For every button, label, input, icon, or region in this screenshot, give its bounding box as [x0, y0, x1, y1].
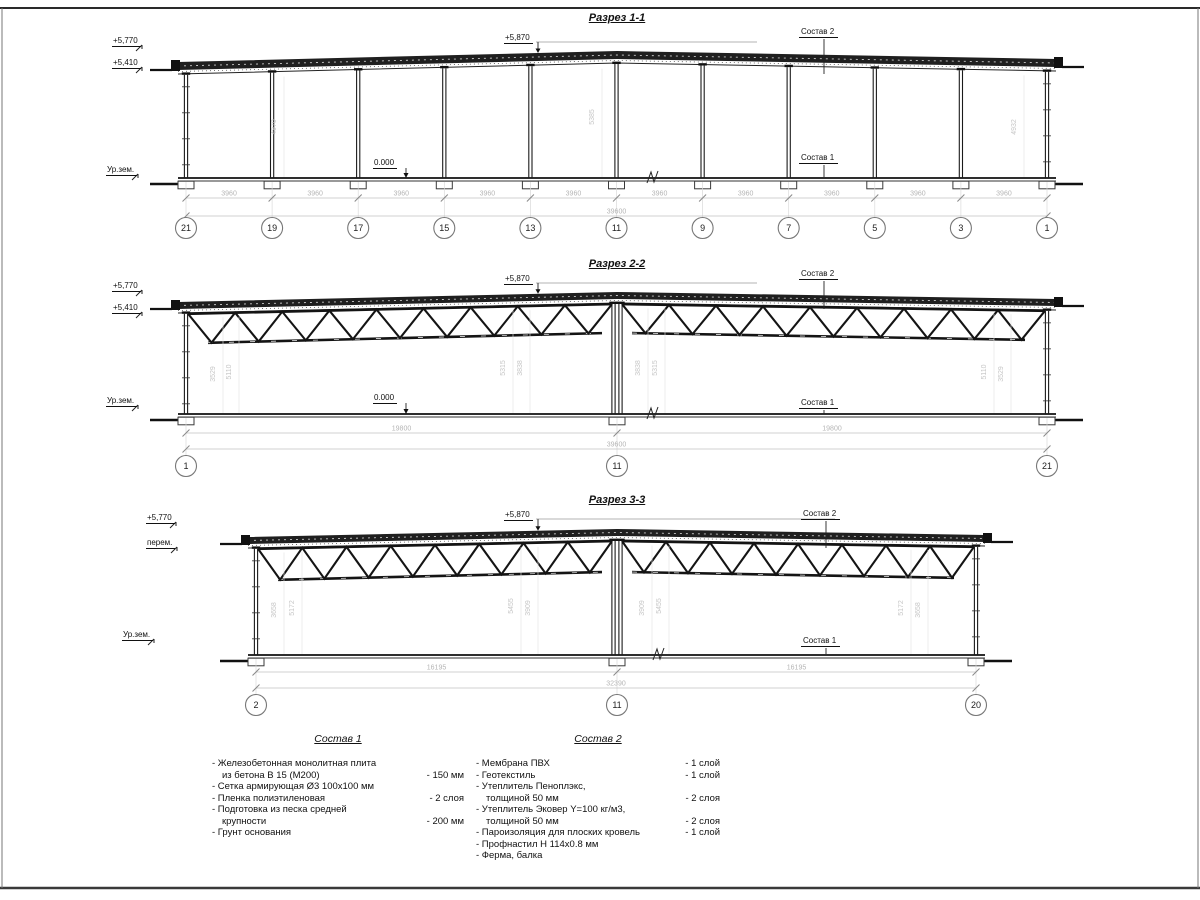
- legend-item-text: - Железобетонная монолитная плита из бет…: [212, 758, 421, 781]
- callout-sostav1-1: Состав 1: [799, 153, 838, 164]
- vertical-dimension: 3658: [915, 602, 922, 618]
- vertical-dimension: 3529: [210, 366, 217, 382]
- grid-bubble-label: 20: [971, 700, 981, 710]
- legend-item: - Утеплитель Пеноплэкс, толщиной 50 мм- …: [476, 781, 720, 804]
- callout-sostav2-1: Состав 2: [799, 27, 838, 38]
- legend-sostav1: Состав 1 - Железобетонная монолитная пли…: [212, 733, 464, 839]
- span-dimension: 16195: [427, 665, 447, 672]
- vertical-dimension: 5455: [508, 598, 515, 614]
- vertical-dimension: 3838: [517, 360, 524, 376]
- span-dimension: 19800: [822, 426, 842, 433]
- legend-item-text: - Геотекстиль: [476, 770, 679, 782]
- elevation-parapet-3: +5,770: [146, 513, 175, 524]
- vertical-dimension: 5385: [589, 109, 596, 125]
- vertical-dimension: 5455: [656, 598, 663, 614]
- vertical-dimension: 3909: [525, 600, 532, 616]
- legend-item-text: - Профнастил Н 114х0.8 мм: [476, 839, 714, 851]
- bay-dimension: 3960: [480, 191, 496, 198]
- grid-bubble-label: 21: [181, 223, 191, 233]
- vertical-dimension: 3909: [639, 600, 646, 616]
- ground-level-label-1: Ур.зем.: [106, 165, 137, 176]
- ground-level-label-3: Ур.зем.: [122, 630, 153, 641]
- vertical-dimension: 4932: [1011, 119, 1018, 135]
- legend-item-value: - 1 слой: [679, 770, 720, 782]
- bay-dimension: 3960: [566, 191, 582, 198]
- legend-item-value: - 2 слоя: [423, 793, 464, 805]
- zero-level-label-1: 0.000: [373, 158, 397, 169]
- section2-title: Разрез 2-2: [555, 258, 679, 270]
- legend-item: - Утеплитель Эковер Y=100 кг/м3, толщино…: [476, 804, 720, 827]
- elevation-parapet-1: +5,770: [112, 36, 141, 47]
- total-dimension: 39600: [607, 209, 627, 216]
- elevation-roofbottom-1: +5,410: [112, 58, 141, 69]
- ground-level-label-2: Ур.зем.: [106, 396, 137, 407]
- vertical-dimension: 3529: [998, 366, 1005, 382]
- callout-sostav1-2: Состав 1: [799, 398, 838, 409]
- elevation-ridge-1: +5,870: [504, 33, 533, 44]
- bay-dimension: 3960: [307, 191, 323, 198]
- legend-item: - Мембрана ПВХ- 1 слой: [476, 758, 720, 770]
- vertical-dimension: 5172: [289, 600, 296, 616]
- elevation-ridge-2: +5,870: [504, 274, 533, 285]
- legend-item-text: - Грунт основания: [212, 827, 458, 839]
- legend-item: - Железобетонная монолитная плита из бет…: [212, 758, 464, 781]
- elevation-ridge-3: +5,870: [504, 510, 533, 521]
- legend-item-value: - 2 слоя: [679, 816, 720, 828]
- legend-item: - Геотекстиль- 1 слой: [476, 770, 720, 782]
- grid-bubble-label: 1: [183, 461, 188, 471]
- bay-dimension: 3960: [393, 191, 409, 198]
- legend-item-text: - Утеплитель Пеноплэкс, толщиной 50 мм: [476, 781, 679, 804]
- bay-dimension: 3960: [738, 191, 754, 198]
- bay-dimension: 3960: [996, 191, 1012, 198]
- legend-item-value: - 150 мм: [421, 770, 464, 782]
- grid-bubble-label: 11: [612, 461, 621, 471]
- elevation-roofbottom-2: +5,410: [112, 303, 141, 314]
- legend-item-text: - Мембрана ПВХ: [476, 758, 679, 770]
- zero-level-label-2: 0.000: [373, 393, 397, 404]
- legend-item-text: - Ферма, балка: [476, 850, 714, 862]
- legend-sostav1-items: - Железобетонная монолитная плита из бет…: [212, 758, 464, 839]
- vertical-dimension: 4970: [271, 119, 278, 135]
- grid-bubble-label: 9: [700, 223, 705, 233]
- callout-sostav2-2: Состав 2: [799, 269, 838, 280]
- vertical-dimension: 5315: [652, 360, 659, 376]
- legend-item-text: - Утеплитель Эковер Y=100 кг/м3, толщино…: [476, 804, 679, 827]
- vertical-dimension: 3658: [271, 602, 278, 618]
- drawing-sheet: 3960396039603960396039603960396039603960…: [0, 0, 1200, 900]
- elevation-roofbottom-3: перем.: [146, 538, 175, 549]
- bay-dimension: 3960: [652, 191, 668, 198]
- page-body: { "page": { "background": "#ffffff", "li…: [0, 0, 1200, 900]
- legend-item: - Подготовка из песка средней крупности-…: [212, 804, 464, 827]
- legend-item: - Грунт основания: [212, 827, 464, 839]
- grid-bubble-label: 7: [786, 223, 791, 233]
- vertical-dimension: 5315: [500, 360, 507, 376]
- bay-dimension: 3960: [824, 191, 840, 198]
- grid-bubble-label: 13: [525, 223, 535, 233]
- legend-item-text: - Пароизоляция для плоских кровель: [476, 827, 679, 839]
- callout-sostav2-3: Состав 2: [801, 509, 840, 520]
- total-dimension: 32390: [606, 681, 626, 688]
- legend-item: - Сетка армирующая Ø3 100x100 мм: [212, 781, 464, 793]
- legend-item-value: - 2 слоя: [679, 793, 720, 805]
- legend-item-text: - Пленка полиэтиленовая: [212, 793, 423, 805]
- vertical-dimension: 5110: [226, 364, 233, 379]
- legend-sostav2: Состав 2 - Мембрана ПВХ- 1 слой- Геотекс…: [476, 733, 720, 862]
- legend-item: - Профнастил Н 114х0.8 мм: [476, 839, 720, 851]
- legend-item: - Пленка полиэтиленовая- 2 слоя: [212, 793, 464, 805]
- grid-bubble-label: 5: [872, 223, 877, 233]
- legend-item: - Ферма, балка: [476, 850, 720, 862]
- grid-bubble-label: 19: [267, 223, 277, 233]
- vertical-dimension: 3838: [635, 360, 642, 376]
- callout-sostav1-3: Состав 1: [801, 636, 840, 647]
- span-dimension: 19800: [392, 426, 412, 433]
- grid-bubble-label: 17: [353, 223, 363, 233]
- legend-item-value: - 200 мм: [421, 816, 464, 828]
- grid-bubble-label: 1: [1044, 223, 1049, 233]
- grid-bubble-label: 11: [612, 700, 621, 710]
- legend-item-text: - Сетка армирующая Ø3 100x100 мм: [212, 781, 458, 793]
- legend-item-value: - 1 слой: [679, 827, 720, 839]
- section1-title: Разрез 1-1: [555, 12, 679, 24]
- legend-sostav2-items: - Мембрана ПВХ- 1 слой- Геотекстиль- 1 с…: [476, 758, 720, 862]
- legend-item-text: - Подготовка из песка средней крупности: [212, 804, 421, 827]
- total-dimension: 39600: [607, 442, 627, 449]
- bay-dimension: 3960: [221, 191, 237, 198]
- grid-bubble-label: 11: [612, 223, 621, 233]
- vertical-dimension: 5110: [981, 364, 988, 379]
- legend-item: - Пароизоляция для плоских кровель- 1 сл…: [476, 827, 720, 839]
- bay-dimension: 3960: [910, 191, 926, 198]
- grid-bubble-label: 3: [958, 223, 963, 233]
- grid-bubble-label: 21: [1042, 461, 1052, 471]
- section3-title: Разрез 3-3: [555, 494, 679, 506]
- vertical-dimension: 5172: [898, 600, 905, 616]
- elevation-parapet-2: +5,770: [112, 281, 141, 292]
- legend-item-value: - 1 слой: [679, 758, 720, 770]
- grid-bubble-label: 15: [439, 223, 449, 233]
- legend-sostav1-title: Состав 1: [212, 733, 464, 745]
- grid-bubble-label: 2: [253, 700, 258, 710]
- legend-sostav2-title: Состав 2: [476, 733, 720, 745]
- span-dimension: 16195: [787, 665, 807, 672]
